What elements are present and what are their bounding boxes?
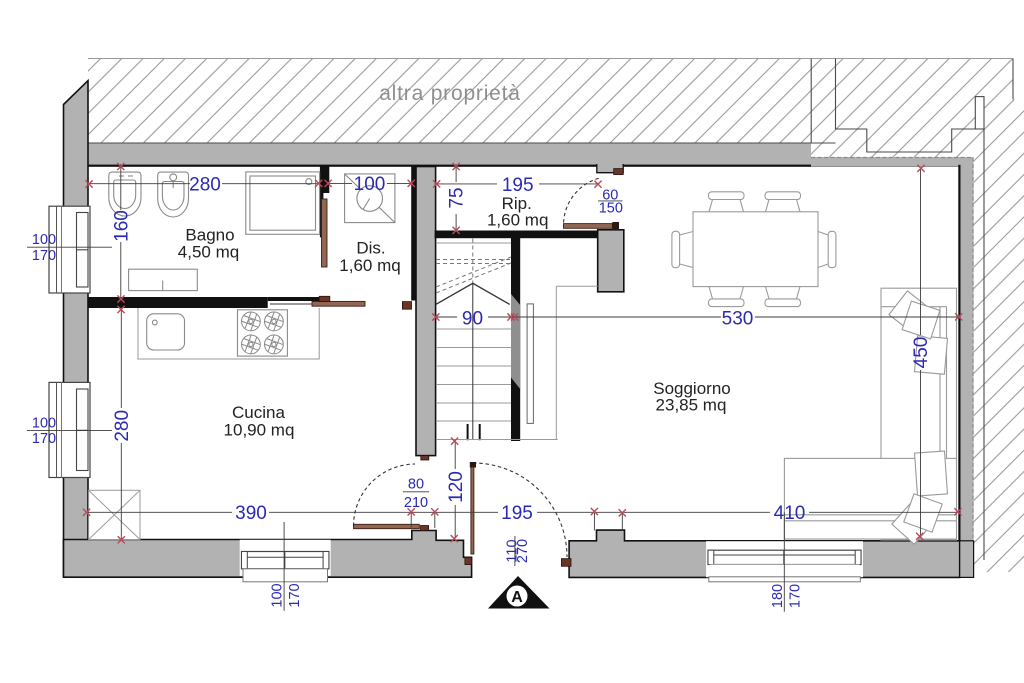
svg-text:410: 410 [774, 503, 806, 524]
svg-text:23,85 mq: 23,85 mq [656, 396, 727, 415]
svg-text:100: 100 [270, 583, 286, 607]
svg-text:100: 100 [32, 232, 56, 248]
svg-text:170: 170 [32, 248, 56, 264]
svg-text:A: A [511, 589, 523, 606]
svg-text:170: 170 [287, 583, 303, 607]
svg-text:195: 195 [502, 175, 534, 196]
svg-text:450: 450 [911, 337, 932, 369]
svg-text:160: 160 [111, 210, 132, 242]
svg-text:10,90 mq: 10,90 mq [224, 421, 295, 440]
svg-text:altra proprietà: altra proprietà [379, 82, 521, 105]
svg-text:270: 270 [515, 539, 531, 563]
svg-text:280: 280 [189, 175, 221, 196]
svg-text:1,60 mq: 1,60 mq [339, 256, 400, 275]
svg-text:170: 170 [32, 431, 56, 447]
svg-text:Dis.: Dis. [356, 239, 385, 258]
svg-text:195: 195 [501, 503, 533, 524]
svg-text:75: 75 [447, 187, 468, 208]
svg-text:150: 150 [599, 201, 623, 217]
svg-text:80: 80 [408, 477, 424, 493]
svg-text:100: 100 [32, 415, 56, 431]
svg-text:390: 390 [235, 503, 267, 524]
svg-text:280: 280 [112, 410, 133, 442]
svg-text:4,50 mq: 4,50 mq [178, 243, 239, 262]
svg-text:180: 180 [770, 584, 786, 608]
svg-text:Cucina: Cucina [232, 403, 285, 422]
svg-text:210: 210 [404, 495, 428, 511]
svg-text:1,60 mq: 1,60 mq [487, 211, 548, 230]
svg-text:530: 530 [722, 308, 754, 329]
svg-text:120: 120 [446, 471, 467, 503]
svg-text:100: 100 [354, 174, 386, 195]
svg-text:90: 90 [462, 309, 483, 330]
svg-text:170: 170 [787, 584, 803, 608]
